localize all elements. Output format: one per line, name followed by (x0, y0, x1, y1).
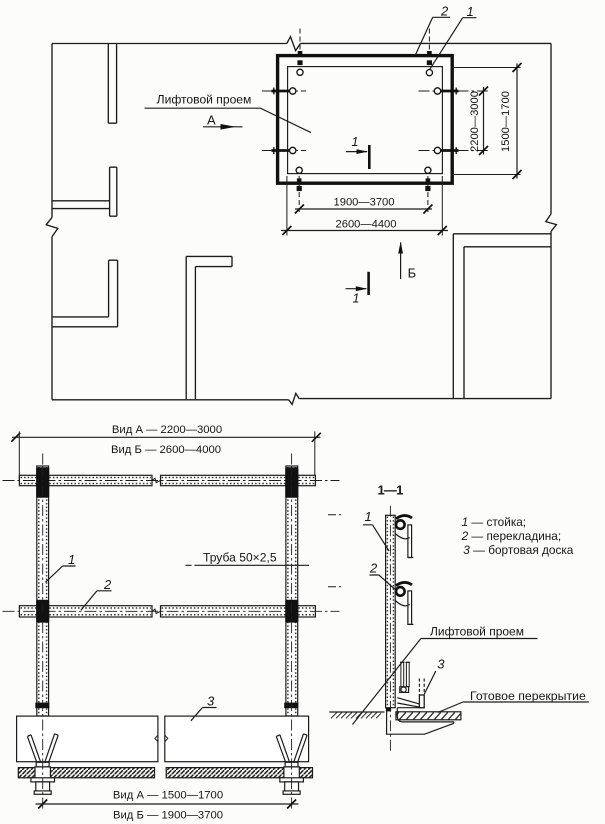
svg-text:Готовое перекрытие: Готовое перекрытие (470, 689, 586, 703)
svg-text:2: 2 (103, 577, 112, 592)
svg-text:2 — перекладина;: 2 — перекладина; (461, 529, 562, 543)
svg-text:1—1: 1—1 (377, 483, 403, 498)
svg-text:Вид А — 1500—1700: Вид А — 1500—1700 (113, 790, 223, 802)
svg-text:А: А (207, 112, 216, 127)
svg-text:Вид А — 2200—3000: Вид А — 2200—3000 (112, 424, 222, 436)
svg-text:1: 1 (352, 135, 359, 149)
svg-text:1: 1 (68, 552, 75, 567)
svg-text:1 — стойка;: 1 — стойка; (462, 515, 526, 529)
svg-text:1: 1 (353, 292, 360, 306)
svg-text:1900—3700: 1900—3700 (334, 196, 395, 208)
svg-text:Вид Б — 1900—3700: Вид Б — 1900—3700 (113, 809, 223, 821)
svg-text:2: 2 (369, 561, 378, 576)
svg-text:3: 3 (437, 657, 445, 672)
svg-text:1: 1 (467, 4, 474, 19)
svg-text:Лифтовой проем: Лифтовой проем (430, 625, 524, 639)
svg-text:Б: Б (408, 266, 417, 281)
svg-text:2: 2 (440, 4, 449, 19)
svg-text:Вид Б — 2600—4000: Вид Б — 2600—4000 (111, 444, 221, 456)
svg-text:1: 1 (365, 509, 372, 524)
svg-text:1500—1700: 1500—1700 (500, 91, 512, 152)
svg-text:Лифтовой проем: Лифтовой проем (157, 93, 252, 107)
svg-text:2200—3000: 2200—3000 (469, 91, 481, 152)
svg-text:3: 3 (207, 694, 215, 709)
svg-text:3 — бортовая доска: 3 — бортовая доска (463, 543, 573, 557)
svg-text:Труба 50×2,5: Труба 50×2,5 (203, 550, 277, 564)
svg-text:2600—4400: 2600—4400 (336, 218, 397, 230)
